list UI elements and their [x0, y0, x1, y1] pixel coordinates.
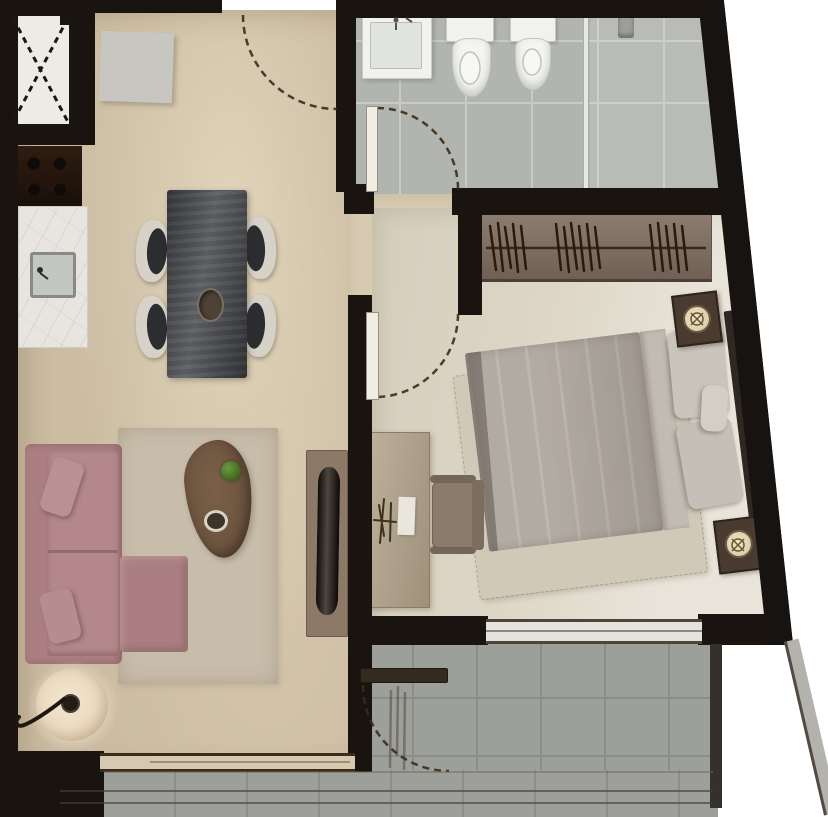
notepad	[397, 497, 415, 536]
wall-top-right	[336, 0, 700, 18]
floor-plan	[0, 0, 828, 817]
wardrobe	[480, 212, 712, 282]
sofa-seam	[48, 550, 118, 553]
chair-seat	[146, 228, 168, 275]
washbasin-basin	[370, 22, 422, 69]
table-lamp	[681, 303, 712, 334]
bed-duvet	[465, 332, 664, 552]
burner	[52, 182, 66, 196]
chair-seat	[244, 302, 266, 349]
shower-zone	[590, 13, 718, 194]
sliding-door-track	[486, 630, 702, 632]
decor-bowl	[204, 510, 228, 532]
burner	[26, 182, 40, 196]
wall-hall-east	[458, 214, 482, 315]
floor-lamp-hub	[61, 694, 80, 713]
balcony-door-leaf	[360, 668, 448, 683]
wall-bedroom-south-corner	[698, 614, 776, 645]
cooktop	[18, 146, 82, 208]
table-lamp	[723, 528, 754, 559]
shower-glass-partition	[583, 13, 589, 194]
chair-seat	[244, 225, 266, 272]
chair-seat	[146, 303, 168, 350]
burner	[26, 156, 40, 170]
wall-left	[0, 13, 18, 773]
wall-top-step	[60, 13, 88, 25]
balcony-side-wall	[710, 644, 722, 808]
wall-bathroom-south	[452, 188, 730, 215]
bathroom-door-leaf	[366, 106, 378, 192]
bed-accent-pillow	[700, 385, 728, 432]
nightstand	[671, 290, 723, 347]
table-centerpiece-bowl	[197, 288, 224, 322]
dining-table	[167, 190, 247, 378]
potted-plant	[221, 461, 241, 481]
burner	[52, 156, 66, 170]
desk-chair-back	[472, 480, 484, 550]
bedroom-door-leaf	[366, 312, 379, 400]
wall-bottom-left-block	[0, 751, 104, 817]
sofa-chaise	[120, 556, 188, 652]
window-mullion	[150, 761, 350, 763]
wall-top-left	[0, 0, 222, 13]
wall-bathroom-west	[336, 0, 356, 192]
kitchen-sink	[30, 252, 76, 298]
tall-cabinet	[99, 31, 174, 104]
wall-bedroom-south	[348, 616, 488, 645]
tv	[316, 467, 341, 615]
floor-deck-strip	[104, 770, 718, 817]
